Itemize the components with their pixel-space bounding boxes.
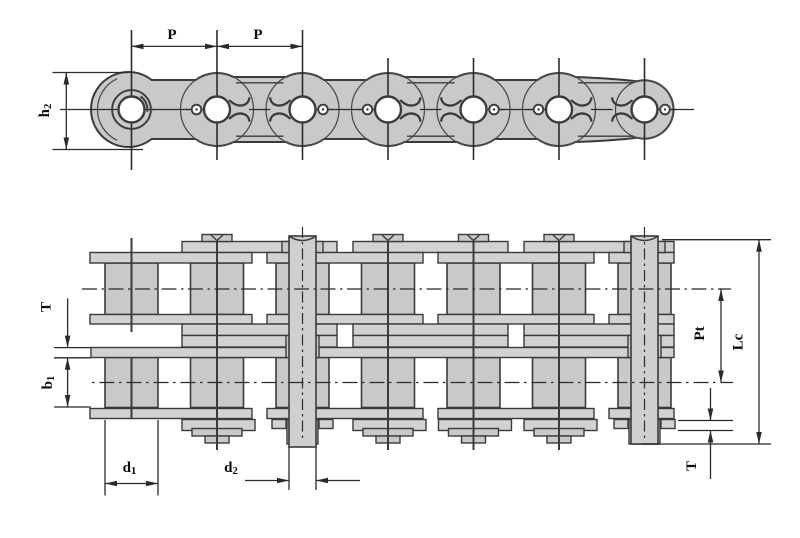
svg-text:T: T xyxy=(684,461,700,471)
svg-text:P: P xyxy=(253,27,262,43)
svg-text:T: T xyxy=(39,302,55,312)
svg-text:P: P xyxy=(167,27,176,43)
svg-text:Lc: Lc xyxy=(731,333,747,350)
svg-text:Pt: Pt xyxy=(692,326,708,340)
